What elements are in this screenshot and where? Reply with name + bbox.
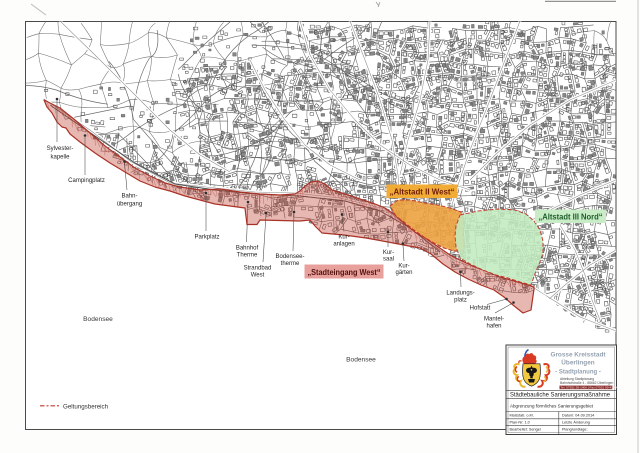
svg-text:saal: saal: [383, 257, 394, 263]
svg-text:therme: therme: [281, 261, 300, 267]
svg-text:„Altstadt II West“: „Altstadt II West“: [390, 188, 455, 197]
svg-text:Landungs-: Landungs-: [446, 291, 474, 297]
svg-text:Kur-: Kur-: [383, 250, 394, 256]
svg-text:platz: platz: [454, 298, 467, 304]
svg-text:Hofstatt: Hofstatt: [470, 306, 491, 312]
svg-text:hafen: hafen: [486, 324, 501, 330]
svg-text:Bahn-: Bahn-: [121, 194, 137, 200]
svg-text:kapelle: kapelle: [50, 155, 70, 161]
svg-text:Plan-Nr: 1.0: Plan-Nr: 1.0: [510, 420, 530, 424]
svg-text:Bodensee: Bodensee: [346, 357, 376, 364]
svg-text:Bodensee-: Bodensee-: [275, 254, 304, 260]
svg-text:anlagen: anlagen: [333, 242, 354, 248]
svg-text:Abgrenzung förmliches Sanierun: Abgrenzung förmliches Sanierungsgebiet: [510, 403, 594, 408]
svg-text:übergang: übergang: [117, 202, 142, 208]
svg-text:Kur-: Kur-: [338, 235, 349, 241]
svg-text:Grosse Kreisstadt: Grosse Kreisstadt: [550, 352, 606, 359]
svg-text:Sylvester-: Sylvester-: [47, 146, 74, 152]
svg-text:Kur-: Kur-: [398, 264, 409, 270]
svg-text:Bahnhofstraße 4 - 88662 Überli: Bahnhofstraße 4 - 88662 Überlingen: [560, 381, 614, 385]
svg-text:Mantel-: Mantel-: [484, 317, 504, 323]
svg-text:„Stadteingang West“: „Stadteingang West“: [308, 268, 381, 277]
svg-text:Therme: Therme: [237, 253, 258, 259]
svg-text:Überlingen: Überlingen: [561, 358, 594, 367]
svg-text:Plangrundlage:: Plangrundlage:: [562, 427, 588, 431]
svg-text:Tel. 07551 99-1406 | Fax 07551: Tel. 07551 99-1406 | Fax 07551 99-41406: [561, 386, 619, 390]
svg-text:West: West: [251, 273, 265, 279]
svg-text:Geltungsbereich: Geltungsbereich: [63, 403, 109, 410]
svg-text:Letzte Änderung: Letzte Änderung: [562, 420, 590, 424]
svg-text:Datum: 04.09.2014: Datum: 04.09.2014: [562, 413, 594, 417]
svg-text:Strandbad: Strandbad: [244, 266, 272, 272]
svg-text:„Altstadt III Nord“: „Altstadt III Nord“: [539, 213, 603, 222]
svg-text:gärten: gärten: [395, 270, 412, 276]
svg-text:Campingplatz: Campingplatz: [68, 178, 105, 184]
svg-text:Maßstab: o.M.: Maßstab: o.M.: [510, 413, 534, 417]
svg-text:Städtebauliche Sanierungsmaßna: Städtebauliche Sanierungsmaßnahme: [510, 392, 611, 399]
svg-text:Bodensee: Bodensee: [83, 316, 113, 323]
svg-text:- Stadtplanung -: - Stadtplanung -: [555, 370, 601, 376]
svg-text:Parkplatz: Parkplatz: [194, 235, 219, 241]
svg-text:Bearbeitet: Sengel: Bearbeitet: Sengel: [510, 427, 541, 431]
svg-text:Bahnhof: Bahnhof: [236, 246, 259, 252]
